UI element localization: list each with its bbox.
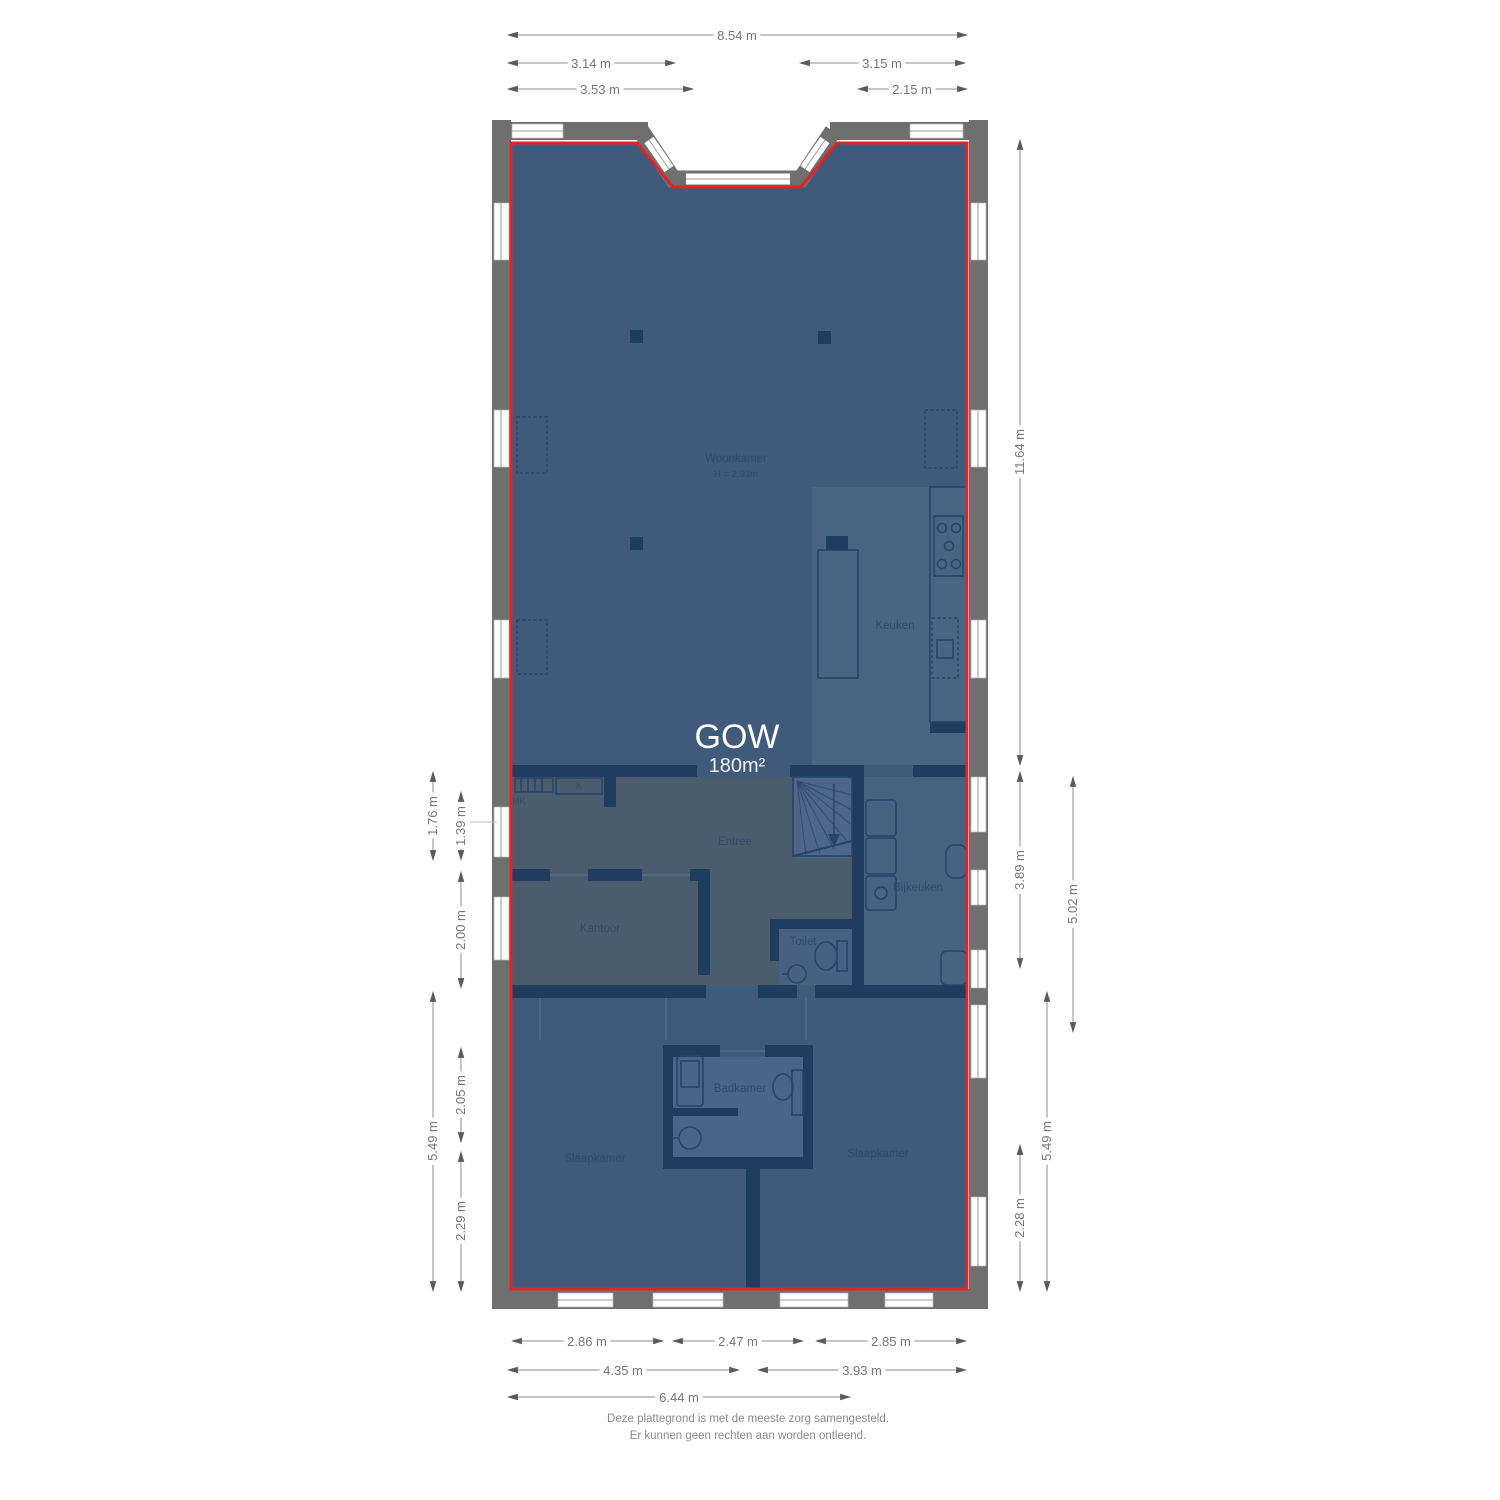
room-label-kantoor: Kantoor <box>580 923 620 935</box>
dim-bottom-row2-2: 3.93 m <box>842 1363 882 1378</box>
dim-left-1: 1.76 m <box>425 796 440 836</box>
dim-bottom-row2-1: 4.35 m <box>603 1363 643 1378</box>
dim-bottom-overall: 6.44 m <box>659 1390 699 1405</box>
floor-area <box>511 143 967 1289</box>
dim-bottom-1: 2.86 m <box>567 1334 607 1349</box>
room-label-toilet: Toilet <box>790 936 818 948</box>
dim-top-left-a: 3.14 m <box>571 56 611 71</box>
room-label-bijkeuken: Bijkeuken <box>893 882 943 894</box>
fridge-handle <box>826 536 848 550</box>
room-label-slaapkamer-links: Slaapkamer <box>564 1153 626 1165</box>
dim-top-right-b: 2.15 m <box>892 82 932 97</box>
room-label-slaapkamer-rechts: Slaapkamer <box>847 1148 909 1160</box>
dim-bottom-3: 2.85 m <box>871 1334 911 1349</box>
dim-left-4: 5.49 m <box>425 1121 440 1161</box>
room-label-keuken: Keuken <box>875 620 914 632</box>
dim-right-1: 11.64 m <box>1012 429 1027 475</box>
disclaimer-line2: Er kunnen geen rechten aan worden ontlee… <box>630 1430 867 1442</box>
dim-top-right-a: 3.15 m <box>862 56 902 71</box>
unit-area: 180m² <box>709 755 766 777</box>
room-label-entree: Entree <box>718 836 752 848</box>
room-label-badkamer: Badkamer <box>714 1083 767 1095</box>
unit-title: GOW <box>695 718 780 756</box>
dim-right-2: 3.89 m <box>1012 850 1027 890</box>
dim-top-left-b: 3.53 m <box>580 82 620 97</box>
dim-left-2: 1.39 m <box>453 806 468 846</box>
dim-right-5: 2.28 m <box>1012 1198 1027 1238</box>
room-label-woonkamer: Woonkamer <box>705 453 767 465</box>
dim-right-3: 5.02 m <box>1065 884 1080 924</box>
dim-top-overall: 8.54 m <box>717 28 757 43</box>
floorplan-canvas: Woonkamer H = 2.93m Keuken Entree Kantoo… <box>0 0 1500 1500</box>
dim-left-3: 2.00 m <box>453 910 468 950</box>
dim-left-6: 2.29 m <box>453 1201 468 1241</box>
room-label-kast: K <box>576 781 582 791</box>
room-height-woonkamer: H = 2.93m <box>714 469 758 480</box>
dim-bottom-2: 2.47 m <box>718 1334 758 1349</box>
dim-left-5: 2.05 m <box>453 1075 468 1115</box>
disclaimer-line1: Deze plattegrond is met de meeste zorg s… <box>607 1413 889 1425</box>
dim-right-4: 5.49 m <box>1039 1121 1054 1161</box>
disclaimer: Deze plattegrond is met de meeste zorg s… <box>607 1413 889 1442</box>
room-label-meterkast: MK <box>512 796 526 806</box>
